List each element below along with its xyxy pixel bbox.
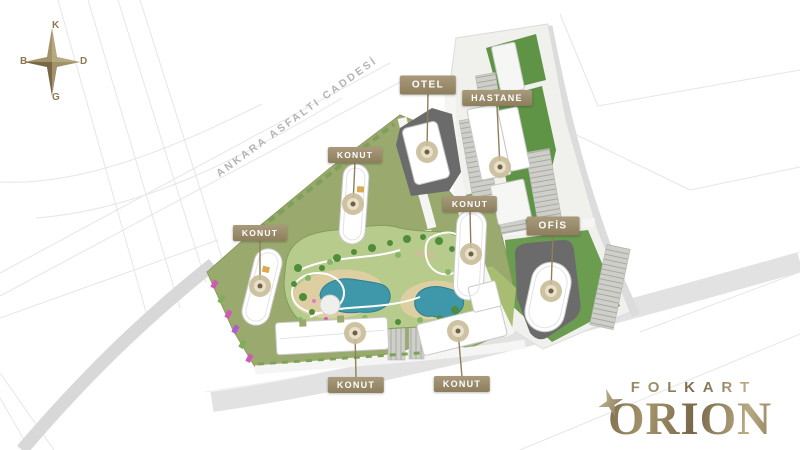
plot-label-konut-top[interactable]: KONUT: [328, 147, 382, 163]
compass-west-label: B: [20, 56, 27, 67]
central-garden: [284, 225, 470, 332]
marker-otel: [416, 141, 438, 163]
folkart-orion-logo: FOLKART ORION: [592, 380, 788, 442]
marker-konut-top: [342, 193, 364, 215]
marker-ofis: [540, 280, 562, 302]
logo-star-icon: [594, 387, 628, 421]
plot-label-konut-center[interactable]: KONUT: [443, 196, 497, 212]
plot-label-hastane[interactable]: HASTANE: [462, 90, 532, 106]
site-plan-page: K D G B ANKARA ASFALTI CADDESİ OTEL HAST…: [0, 0, 800, 450]
marker-konut-south: [344, 322, 366, 344]
marker-konut-center: [460, 243, 482, 265]
compass-rose: K D G B: [8, 12, 98, 108]
marker-konut-west: [249, 275, 271, 297]
compass-east-label: D: [80, 56, 87, 67]
marker-konut-southeast: [447, 320, 469, 342]
plot-label-ofis[interactable]: OFİS: [527, 217, 580, 236]
plot-label-otel[interactable]: OTEL: [400, 76, 456, 95]
logo-project-text: ORION: [592, 397, 788, 442]
plot-label-konut-south[interactable]: KONUT: [328, 377, 384, 393]
marker-hastane: [489, 156, 511, 178]
compass-north-label: K: [52, 20, 59, 31]
plot-label-konut-southeast[interactable]: KONUT: [434, 376, 490, 392]
compass-south-label: G: [52, 92, 60, 103]
plot-label-konut-west[interactable]: KONUT: [233, 225, 287, 241]
